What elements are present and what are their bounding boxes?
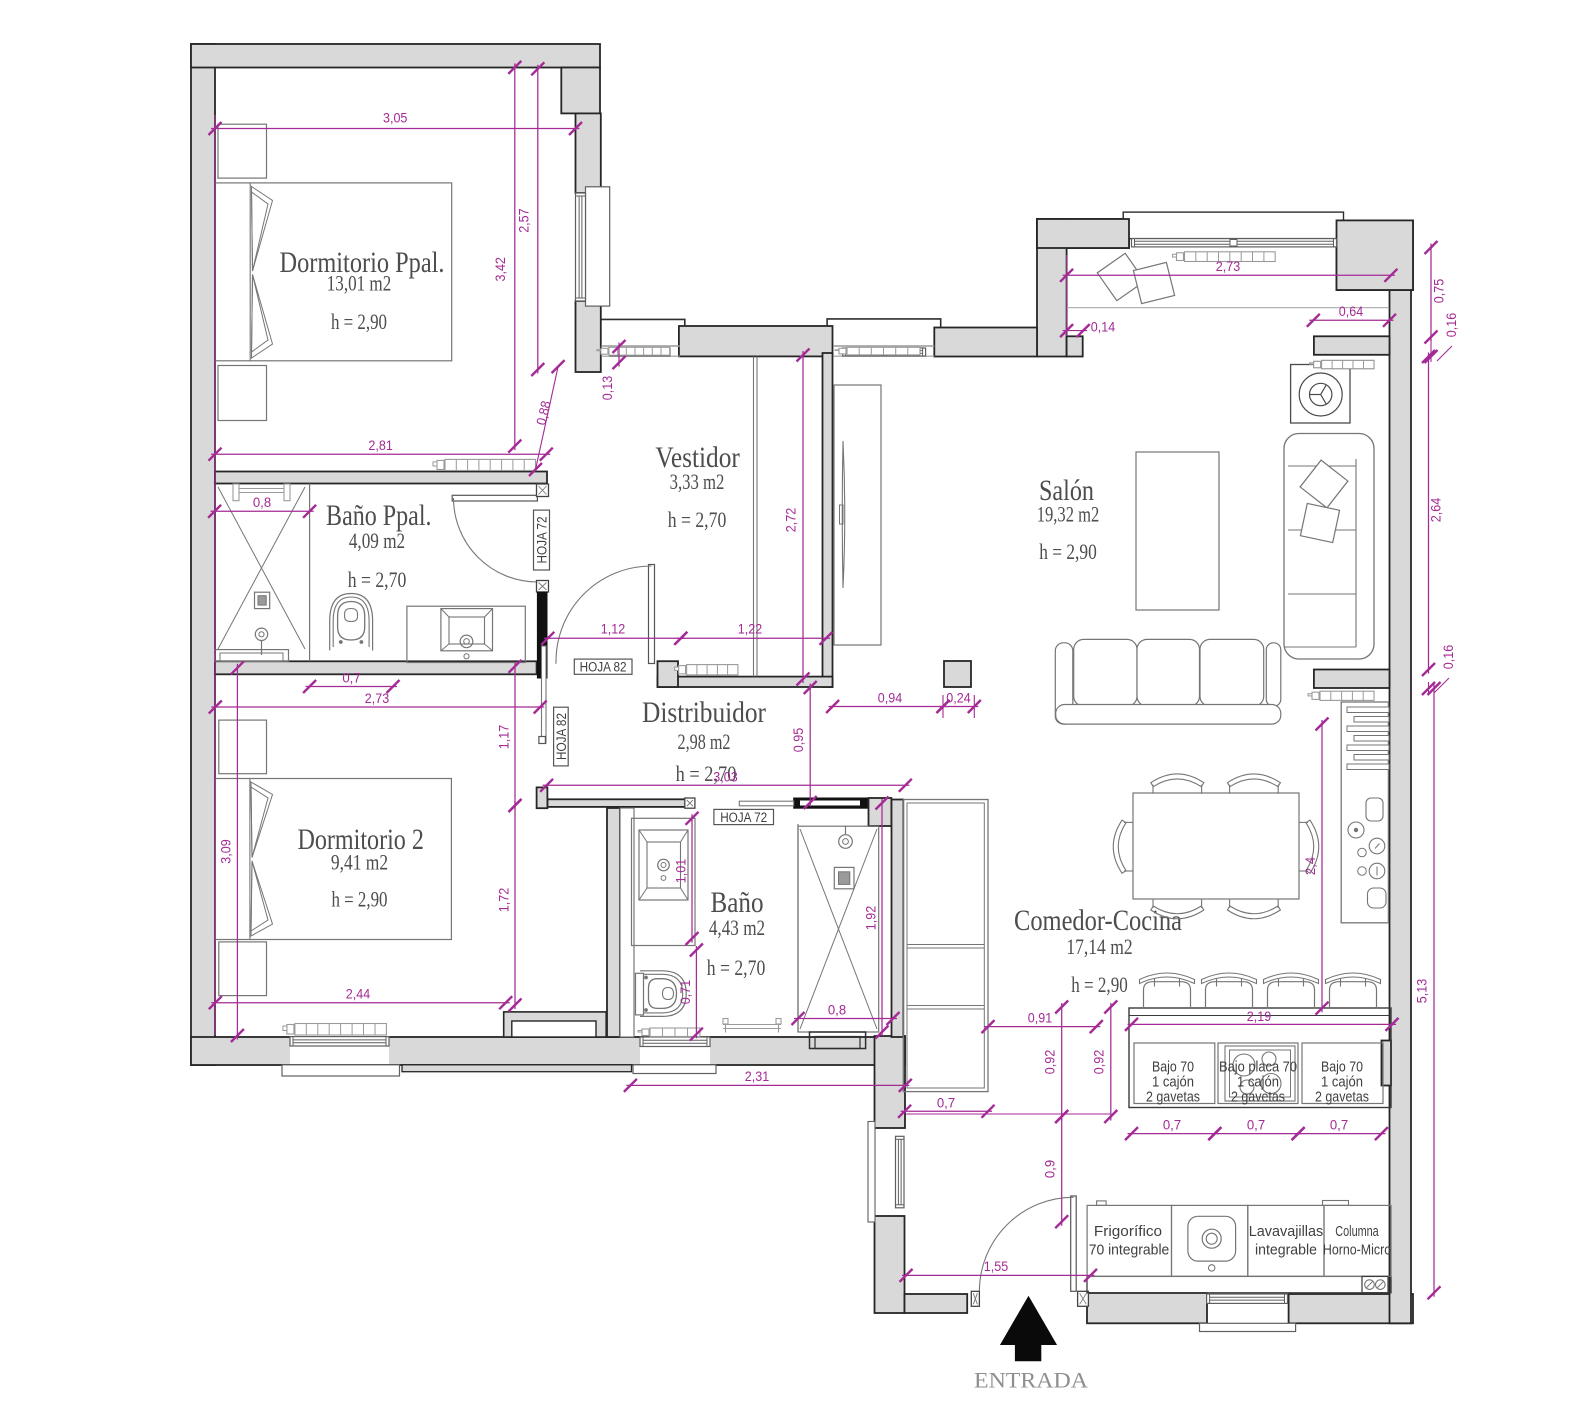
svg-text:0,75: 0,75 — [1432, 279, 1447, 303]
svg-text:ENTRADA: ENTRADA — [974, 1368, 1089, 1393]
svg-text:1,22: 1,22 — [738, 622, 762, 637]
svg-text:1 cajón: 1 cajón — [1321, 1075, 1363, 1091]
svg-text:2,57: 2,57 — [517, 208, 532, 232]
svg-text:2,72: 2,72 — [784, 508, 799, 532]
svg-text:1,12: 1,12 — [601, 622, 625, 637]
svg-text:h = 2,70: h = 2,70 — [707, 955, 766, 980]
svg-text:1,92: 1,92 — [864, 906, 879, 930]
svg-text:h = 2,70: h = 2,70 — [348, 567, 407, 592]
svg-text:Bajo 70: Bajo 70 — [1321, 1060, 1363, 1076]
svg-text:1,72: 1,72 — [497, 888, 512, 912]
svg-text:0,7: 0,7 — [1163, 1118, 1181, 1133]
svg-text:0,8: 0,8 — [828, 1003, 846, 1018]
svg-text:HOJA 82: HOJA 82 — [580, 660, 627, 675]
svg-text:2,73: 2,73 — [365, 691, 389, 706]
svg-text:0,16: 0,16 — [1444, 313, 1459, 337]
svg-text:Frigorífico: Frigorífico — [1094, 1223, 1162, 1240]
svg-text:2 gavetas: 2 gavetas — [1146, 1090, 1200, 1106]
svg-text:integrable: integrable — [1255, 1242, 1317, 1259]
svg-text:Comedor-Cocina: Comedor-Cocina — [1014, 904, 1182, 937]
svg-text:0,16: 0,16 — [1441, 645, 1456, 669]
svg-text:0,13: 0,13 — [600, 376, 615, 400]
svg-text:0,92: 0,92 — [1043, 1050, 1058, 1074]
svg-text:0,71: 0,71 — [678, 980, 693, 1004]
svg-text:HOJA 72: HOJA 72 — [720, 810, 767, 825]
svg-text:Distribuidor: Distribuidor — [642, 696, 766, 729]
svg-text:0,7: 0,7 — [937, 1096, 955, 1111]
svg-text:70 integrable: 70 integrable — [1089, 1242, 1170, 1259]
svg-text:2,73: 2,73 — [1216, 259, 1240, 274]
svg-text:h = 2,70: h = 2,70 — [668, 507, 727, 532]
svg-text:0,94: 0,94 — [878, 691, 903, 706]
svg-text:4,43 m2: 4,43 m2 — [709, 915, 765, 940]
svg-text:19,32 m2: 19,32 m2 — [1037, 502, 1100, 527]
svg-text:0,14: 0,14 — [1091, 320, 1116, 335]
svg-text:1 cajón: 1 cajón — [1237, 1075, 1279, 1091]
svg-text:0,9: 0,9 — [1043, 1160, 1058, 1178]
svg-text:13,01 m2: 13,01 m2 — [327, 271, 392, 296]
svg-text:Bajo placa 70: Bajo placa 70 — [1219, 1060, 1297, 1076]
svg-text:2,19: 2,19 — [1247, 1009, 1271, 1024]
svg-text:1,55: 1,55 — [984, 1259, 1008, 1274]
svg-text:2,81: 2,81 — [368, 438, 392, 453]
svg-text:0,7: 0,7 — [1247, 1118, 1265, 1133]
svg-text:2 gavetas: 2 gavetas — [1231, 1090, 1285, 1106]
svg-text:1 cajón: 1 cajón — [1152, 1075, 1194, 1091]
svg-text:0,64: 0,64 — [1339, 304, 1364, 319]
svg-text:0,7: 0,7 — [1330, 1118, 1348, 1133]
svg-text:Horno-Micro: Horno-Micro — [1323, 1242, 1391, 1259]
svg-text:0,91: 0,91 — [1028, 1011, 1052, 1026]
svg-text:2,64: 2,64 — [1429, 497, 1444, 522]
svg-text:3,05: 3,05 — [383, 111, 407, 126]
svg-text:HOJA 82: HOJA 82 — [554, 713, 569, 760]
svg-text:3,09: 3,09 — [219, 839, 234, 863]
svg-text:17,14 m2: 17,14 m2 — [1066, 934, 1132, 959]
svg-text:2,44: 2,44 — [346, 987, 371, 1002]
svg-text:0,95: 0,95 — [791, 728, 806, 752]
svg-text:2,4: 2,4 — [1303, 856, 1318, 875]
svg-text:3,33 m2: 3,33 m2 — [670, 469, 725, 494]
svg-text:0,7: 0,7 — [342, 671, 360, 686]
svg-text:Bajo 70: Bajo 70 — [1152, 1060, 1194, 1076]
svg-text:h = 2,90: h = 2,90 — [1039, 539, 1097, 564]
svg-text:1,01: 1,01 — [674, 859, 689, 883]
svg-text:h = 2,90: h = 2,90 — [332, 887, 388, 912]
svg-text:h = 2,90: h = 2,90 — [331, 309, 387, 334]
svg-text:4,09 m2: 4,09 m2 — [349, 528, 405, 553]
svg-text:2,31: 2,31 — [745, 1069, 769, 1084]
svg-text:0,8: 0,8 — [253, 495, 271, 510]
svg-text:5,13: 5,13 — [1415, 979, 1430, 1003]
svg-text:2,98 m2: 2,98 m2 — [678, 729, 731, 754]
svg-text:2 gavetas: 2 gavetas — [1315, 1090, 1369, 1106]
svg-text:Lavavajillas: Lavavajillas — [1249, 1223, 1323, 1240]
svg-text:0,24: 0,24 — [946, 691, 971, 706]
svg-text:HOJA 72: HOJA 72 — [535, 517, 550, 564]
svg-text:Columna: Columna — [1335, 1223, 1379, 1240]
svg-text:9,41 m2: 9,41 m2 — [331, 850, 388, 875]
svg-text:3,03: 3,03 — [713, 770, 737, 785]
svg-text:h = 2,90: h = 2,90 — [1071, 972, 1128, 997]
svg-text:3,42: 3,42 — [493, 257, 508, 281]
svg-text:0,92: 0,92 — [1092, 1050, 1107, 1074]
svg-text:1,17: 1,17 — [497, 725, 512, 749]
